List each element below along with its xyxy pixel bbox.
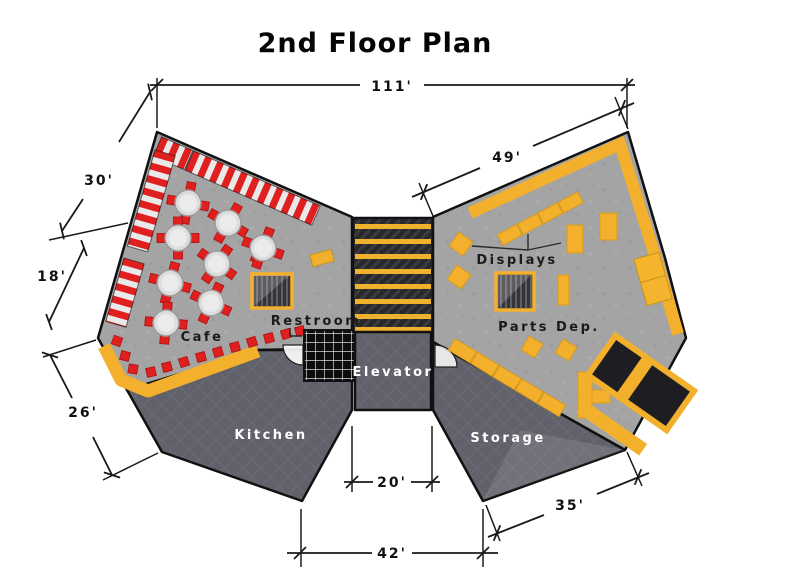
stool [263,332,274,343]
room-label-elevator: Elevator [353,365,434,380]
stool [229,341,240,352]
dim-label-storage-wall: 35' [555,498,585,514]
dim-label-bottom-span: 42' [377,546,407,562]
stool [161,361,172,372]
room-label-cafe: Cafe [181,330,224,345]
room-label-restroom: Restroom [271,314,362,329]
floor-plan-page: 2nd Floor Plan 111' 49' 30' 18' [0,0,789,579]
floor-plan-svg: 2nd Floor Plan 111' 49' 30' 18' [0,0,789,579]
stairs-left [252,274,292,308]
stairs-right [496,273,534,310]
restroom-floor [304,330,355,381]
corridor [353,218,433,332]
display-case [567,225,583,253]
stool [195,351,206,362]
dim-label-overall-width: 111' [371,79,413,95]
stool [119,350,130,361]
stool [146,367,157,378]
room-label-parts-dept: Parts Dep. [498,320,600,335]
dim-label-parts-wall: 49' [492,150,522,166]
dim-cafe-wall-lower: 18' [37,240,96,357]
room-label-displays: Displays [476,253,557,268]
page-title: 2nd Floor Plan [258,28,493,59]
room-label-storage: Storage [470,431,545,446]
display-case [558,275,569,305]
room-label-kitchen: Kitchen [234,428,307,443]
dim-label-elevator-width: 20' [377,475,407,491]
dim-label-cafe-wall-lower: 18' [37,269,67,285]
dim-bottom-span: 42' [287,509,498,567]
dim-label-cafe-wall-upper: 30' [84,173,114,189]
dim-label-kitchen-wall: 26' [68,405,98,421]
dim-elevator-width: 20' [344,426,440,492]
stool [128,364,138,374]
dim-overall-width: 111' [150,78,635,128]
display-case [600,213,617,240]
